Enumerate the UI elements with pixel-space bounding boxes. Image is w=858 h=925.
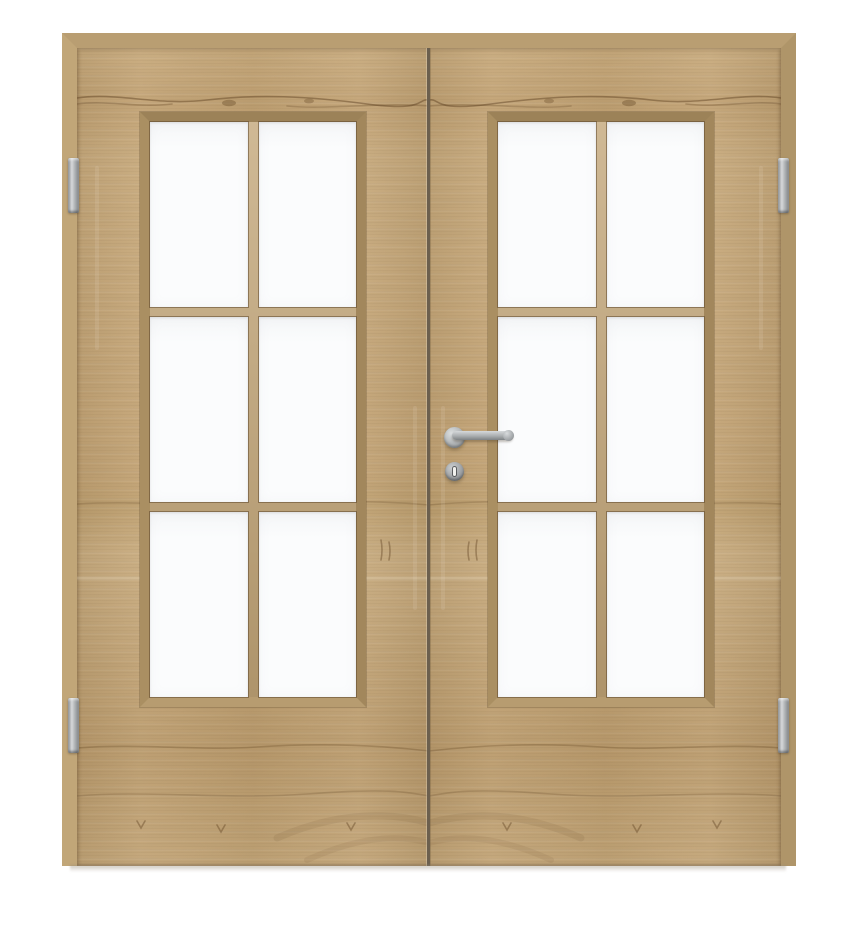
left-door-leaf [77, 48, 429, 866]
glass-pane [607, 122, 705, 307]
hinge-top-left [68, 158, 79, 213]
hinge-top-right [778, 158, 789, 213]
glass-pane [150, 317, 248, 502]
glass-pane [150, 122, 248, 307]
glass-pane [607, 512, 705, 697]
glass-pane [498, 317, 596, 502]
hinge-bottom-right [778, 698, 789, 753]
key-escutcheon [445, 462, 464, 481]
lever-handle-end-cap [503, 430, 514, 441]
keyhole-icon [453, 467, 456, 476]
left-glazing-bevel-frame [140, 112, 366, 707]
door-meeting-gap [427, 48, 430, 866]
glass-pane [259, 122, 357, 307]
glass-pane [607, 317, 705, 502]
glass-pane [259, 317, 357, 502]
glass-pane [150, 512, 248, 697]
floor-shadow [70, 865, 786, 872]
left-glazing-panel [150, 122, 356, 697]
glass-pane [259, 512, 357, 697]
right-door-leaf [429, 48, 781, 866]
glass-pane [498, 122, 596, 307]
right-glazing-panel [498, 122, 704, 697]
double-door-product-photo [0, 0, 858, 925]
hinge-bottom-left [68, 698, 79, 753]
right-glazing-bevel-frame [488, 112, 714, 707]
glass-pane [498, 512, 596, 697]
